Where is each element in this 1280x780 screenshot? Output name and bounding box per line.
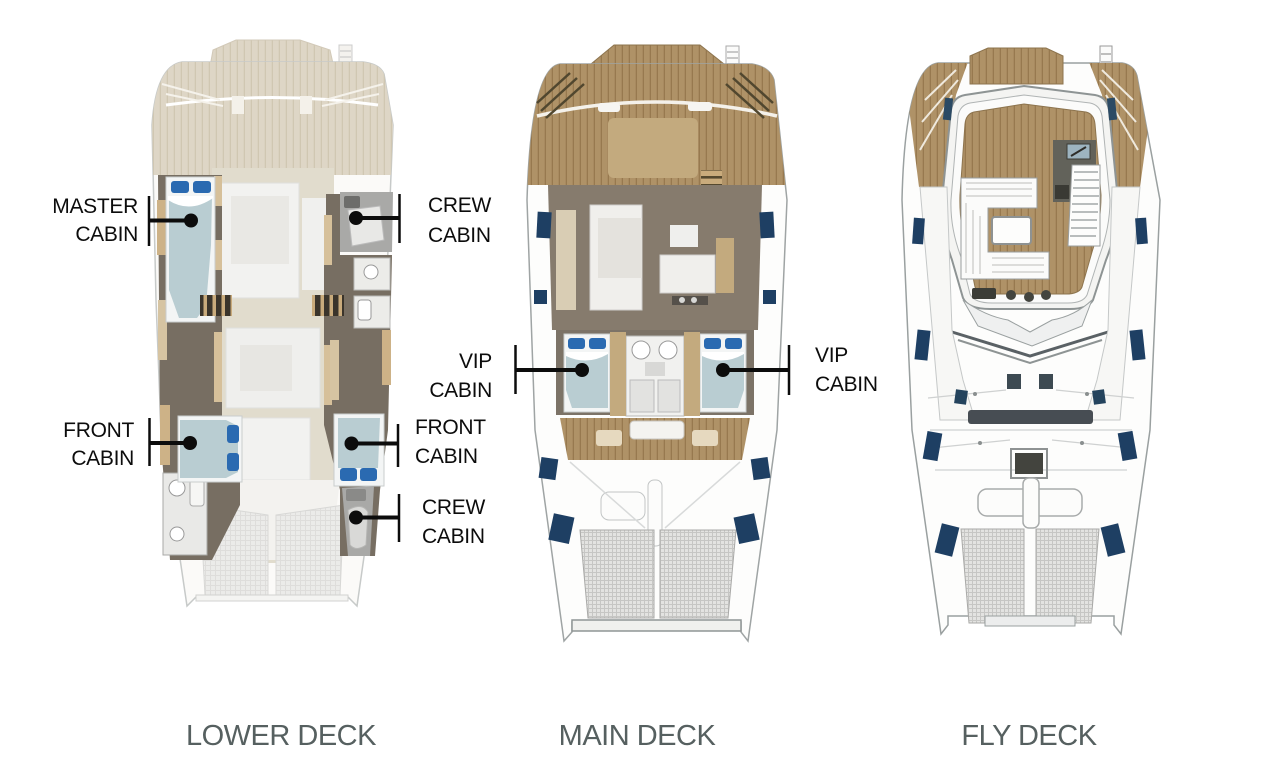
svg-text:CABIN: CABIN bbox=[75, 223, 138, 246]
svg-text:MASTER: MASTER bbox=[52, 195, 138, 218]
svg-text:CABIN: CABIN bbox=[429, 379, 492, 402]
svg-text:CABIN: CABIN bbox=[415, 445, 478, 468]
svg-text:CABIN: CABIN bbox=[428, 224, 491, 247]
svg-text:CABIN: CABIN bbox=[815, 373, 878, 396]
svg-text:LOWER DECK: LOWER DECK bbox=[186, 720, 377, 752]
svg-text:VIP: VIP bbox=[815, 344, 848, 367]
svg-text:CREW: CREW bbox=[422, 496, 485, 519]
svg-text:FRONT: FRONT bbox=[63, 419, 134, 442]
svg-text:FRONT: FRONT bbox=[415, 416, 486, 439]
svg-text:FLY DECK: FLY DECK bbox=[961, 720, 1097, 752]
svg-text:CABIN: CABIN bbox=[71, 447, 134, 470]
svg-text:MAIN DECK: MAIN DECK bbox=[559, 720, 717, 752]
svg-text:CABIN: CABIN bbox=[422, 525, 485, 548]
svg-text:CREW: CREW bbox=[428, 194, 491, 217]
svg-text:VIP: VIP bbox=[459, 350, 492, 373]
